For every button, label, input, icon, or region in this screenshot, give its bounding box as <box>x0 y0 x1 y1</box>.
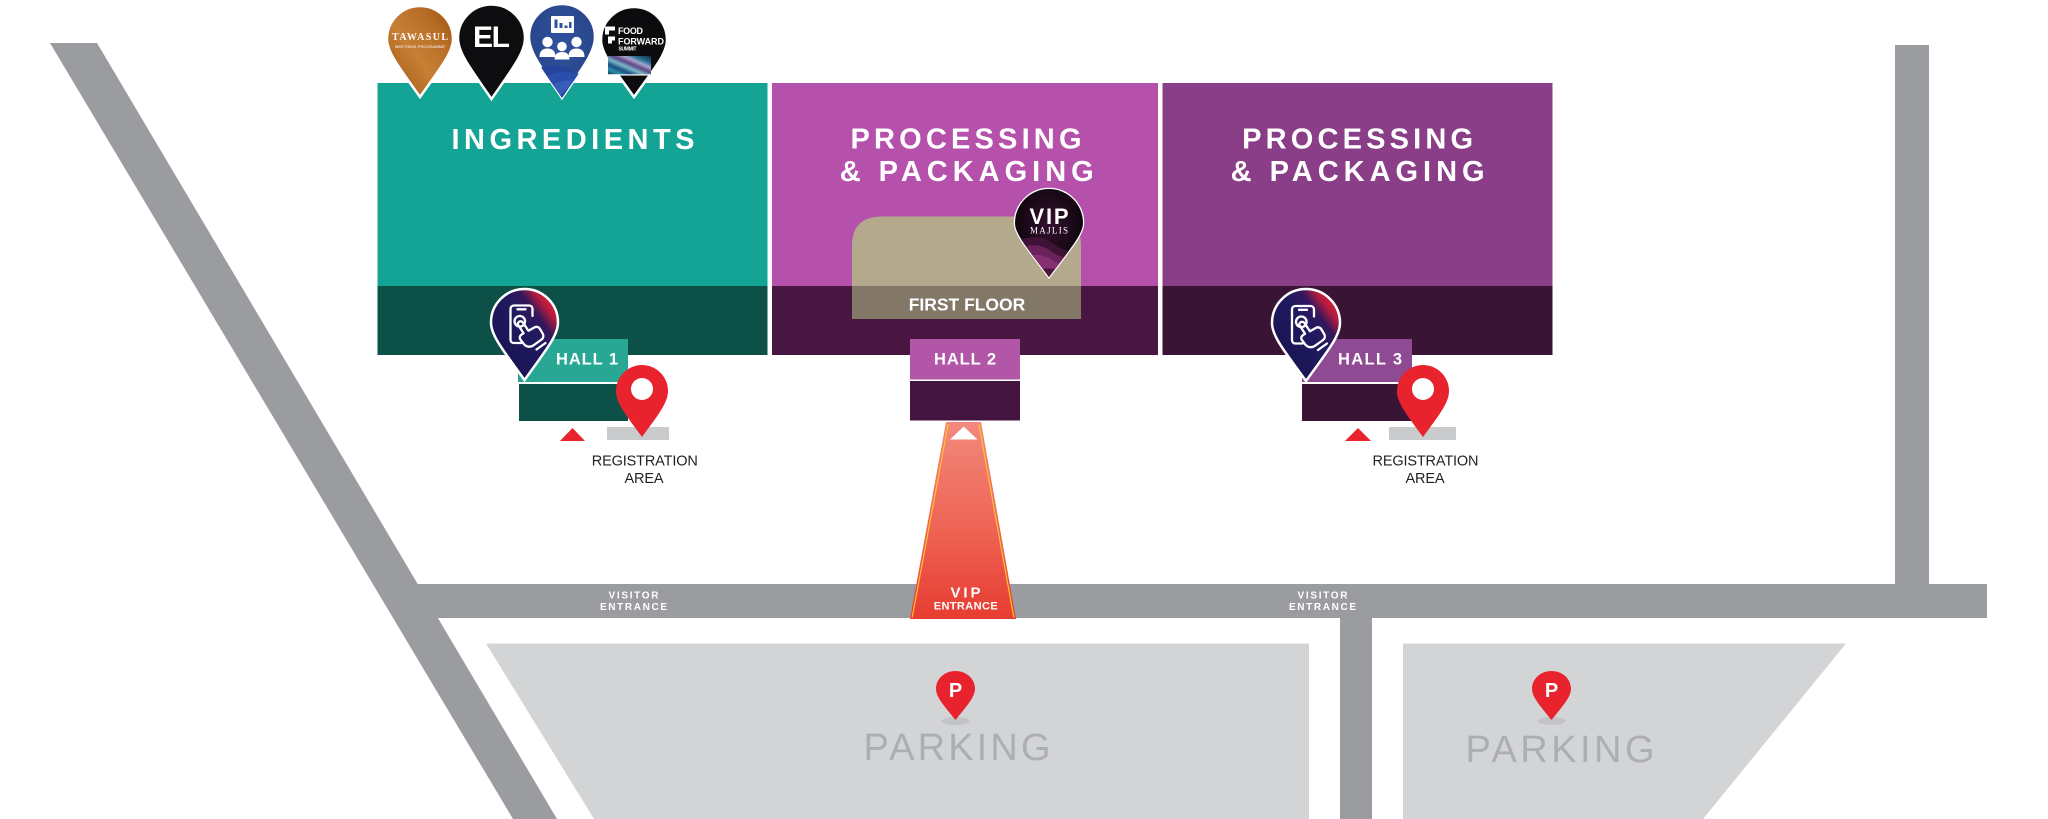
svg-text:HALL 2: HALL 2 <box>934 351 996 369</box>
svg-text:REGISTRATION: REGISTRATION <box>592 454 698 470</box>
svg-text:EL: EL <box>473 21 510 54</box>
svg-text:VIP: VIP <box>951 585 981 602</box>
svg-text:& PACKAGING: & PACKAGING <box>1231 156 1485 188</box>
svg-text:PARKING: PARKING <box>1466 729 1655 771</box>
svg-text:AREA: AREA <box>1406 471 1445 487</box>
svg-text:FORWARD: FORWARD <box>618 37 665 47</box>
svg-text:& PACKAGING: & PACKAGING <box>840 156 1094 188</box>
svg-text:FIRST FLOOR: FIRST FLOOR <box>909 295 1026 315</box>
svg-text:HALL 1: HALL 1 <box>556 351 618 369</box>
svg-text:REGISTRATION: REGISTRATION <box>1373 454 1479 470</box>
svg-text:P: P <box>949 680 962 702</box>
svg-text:PROCESSING: PROCESSING <box>851 124 1082 156</box>
svg-text:VISITOR: VISITOR <box>609 590 660 601</box>
svg-text:MAJLIS: MAJLIS <box>1030 226 1068 236</box>
svg-text:ENTRANCE: ENTRANCE <box>600 602 667 613</box>
svg-text:FOOD: FOOD <box>618 26 644 36</box>
svg-text:ENTRANCE: ENTRANCE <box>1289 602 1356 613</box>
svg-text:MEETINGS PROGRAMME: MEETINGS PROGRAMME <box>395 44 445 49</box>
svg-text:ENTRANCE: ENTRANCE <box>934 601 998 613</box>
svg-text:HALL 3: HALL 3 <box>1338 351 1402 369</box>
svg-text:PROCESSING: PROCESSING <box>1242 124 1473 156</box>
svg-text:TAWASUL: TAWASUL <box>392 32 448 43</box>
svg-text:PARKING: PARKING <box>864 727 1051 769</box>
svg-text:P: P <box>1545 680 1558 702</box>
svg-text:SUMMIT: SUMMIT <box>619 47 637 53</box>
svg-text:VISITOR: VISITOR <box>1298 590 1349 601</box>
svg-text:AREA: AREA <box>625 471 664 487</box>
